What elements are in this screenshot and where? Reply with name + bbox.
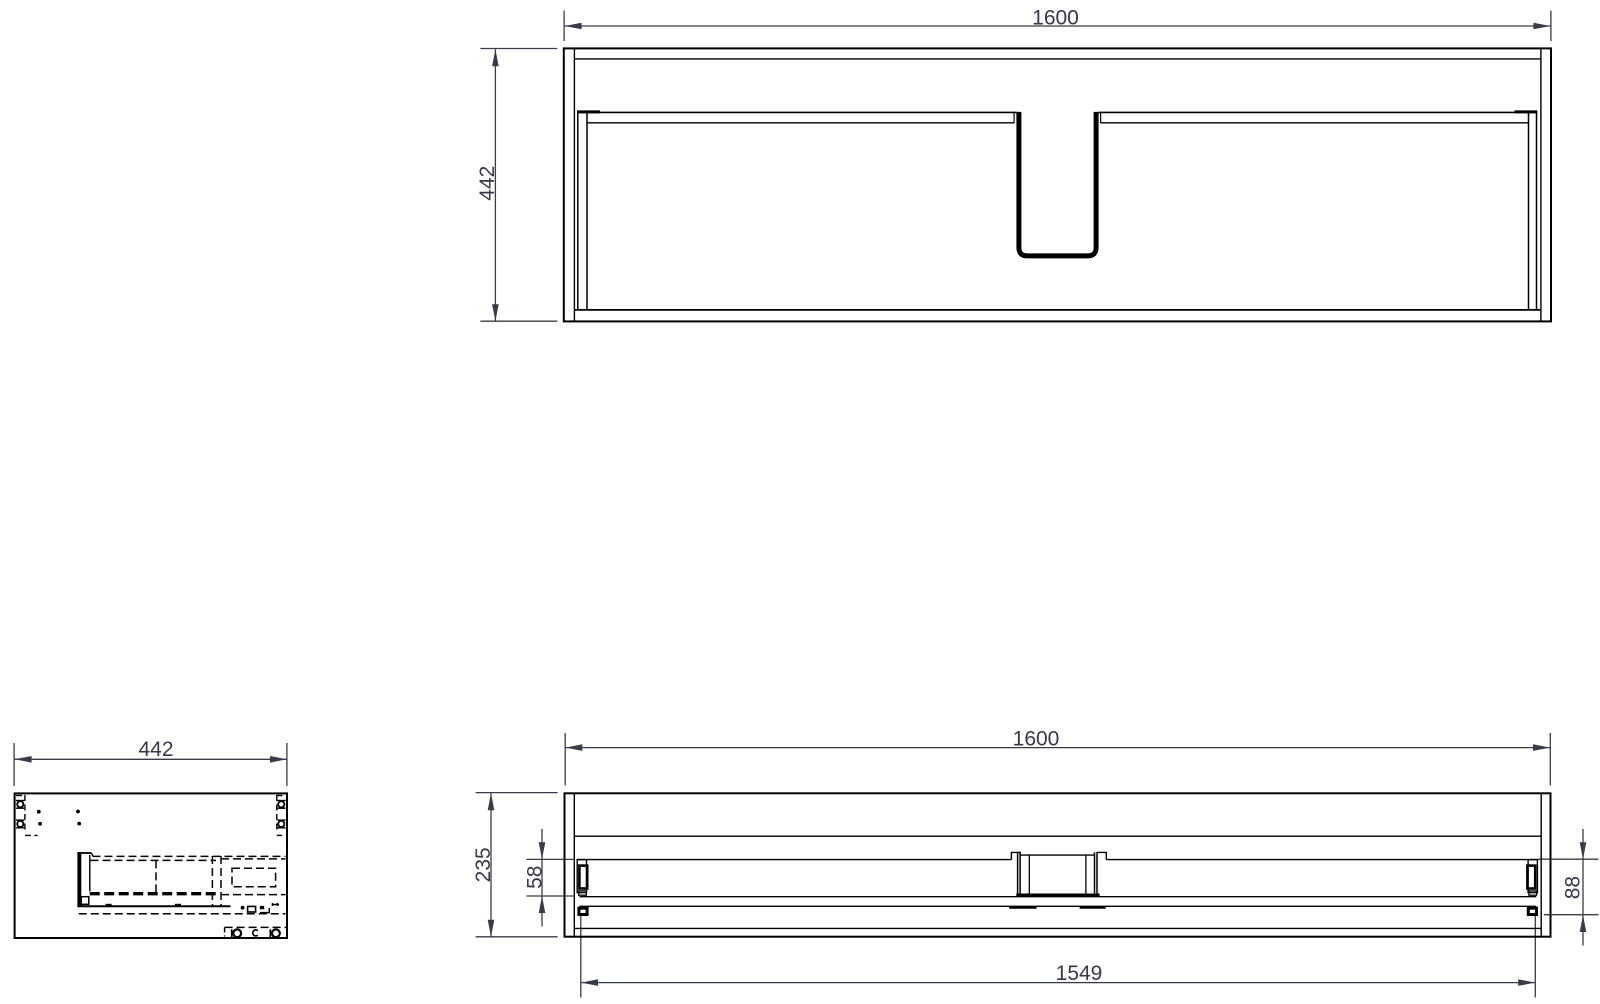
svg-text:58: 58 (524, 866, 547, 889)
svg-text:1600: 1600 (1013, 727, 1060, 750)
svg-text:442: 442 (138, 738, 173, 761)
svg-text:1600: 1600 (1032, 7, 1079, 30)
svg-text:235: 235 (472, 847, 495, 882)
svg-text:442: 442 (476, 166, 499, 201)
svg-text:88: 88 (1562, 876, 1585, 899)
svg-text:1549: 1549 (1056, 962, 1103, 985)
